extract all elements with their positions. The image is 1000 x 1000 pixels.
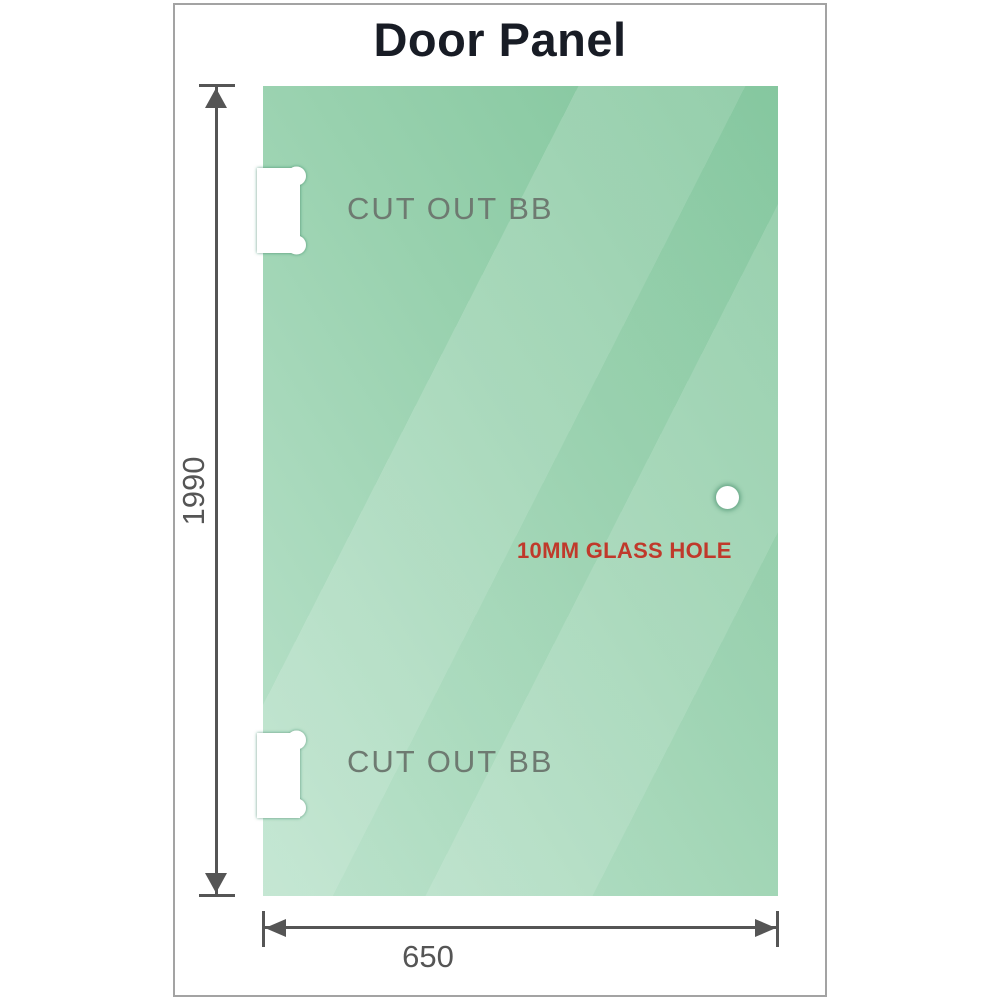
arrow-left-icon (265, 919, 286, 937)
cutout-top-label: CUT OUT BB (347, 191, 554, 227)
arrow-down-icon (205, 873, 227, 893)
glass-hole-label: 10MM GLASS HOLE (517, 538, 732, 564)
page-title: Door Panel (173, 12, 827, 67)
hinge-cutout-bottom-icon (263, 723, 315, 827)
glass-hole-icon (716, 486, 739, 509)
height-dimension-line (215, 87, 218, 895)
cutout-bottom-label: CUT OUT BB (347, 744, 554, 780)
width-dimension-value: 650 (368, 939, 488, 975)
width-dimension-line (264, 926, 777, 929)
arrow-up-icon (205, 88, 227, 108)
arrow-right-icon (755, 919, 776, 937)
height-dimension-value: 1990 (177, 430, 211, 552)
door-panel-diagram: Door Panel CUT OUT BB CUT OUT BB 10MM (0, 0, 1000, 1000)
hinge-cutout-top-icon (263, 158, 315, 262)
width-dimension-right-tick (776, 911, 779, 947)
